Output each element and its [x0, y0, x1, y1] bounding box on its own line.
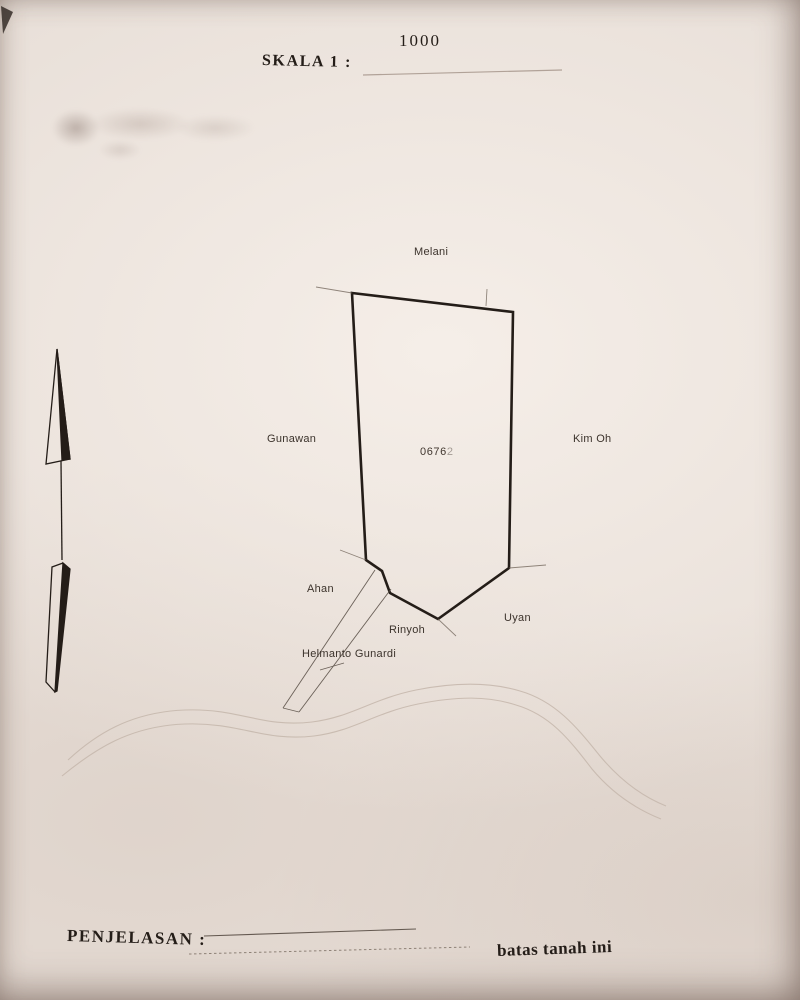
river-lines: [62, 684, 666, 819]
parcel-number-main: 0676: [420, 446, 447, 458]
access-road: [283, 570, 391, 712]
scale-label: SKALA 1 :: [262, 52, 352, 72]
neighbor-label-southeast: Uyan: [504, 612, 531, 624]
north-arrow-icon: [46, 349, 70, 692]
neighbor-label-west: Gunawan: [267, 433, 316, 445]
page-corner-mark: [1, 6, 13, 34]
neighbor-label-southwest: Ahan: [307, 583, 334, 595]
scale-value: 1000: [399, 31, 441, 51]
parcel-number: 06762: [420, 446, 454, 458]
penjelasan-blank-line: [189, 947, 470, 954]
road-owner-label: Helmanto Gunardi: [302, 648, 396, 660]
parcel-number-faded-digit: 2: [447, 446, 454, 458]
penjelasan-upper-line: [204, 929, 416, 936]
neighbor-label-east: Kim Oh: [573, 433, 611, 445]
scale-blank-line: [363, 70, 562, 75]
neighbor-label-south: Rinyoh: [389, 624, 425, 636]
neighbor-label-north: Melani: [414, 246, 448, 258]
batas-tanah-note: batas tanah ini: [497, 937, 613, 961]
penjelasan-label: PENJELASAN :: [67, 926, 207, 950]
survey-sketch-drawing: [0, 0, 800, 1000]
scanned-survey-page: 1000 SKALA 1 : Melani Gunawan Kim Oh 067…: [0, 0, 800, 1000]
